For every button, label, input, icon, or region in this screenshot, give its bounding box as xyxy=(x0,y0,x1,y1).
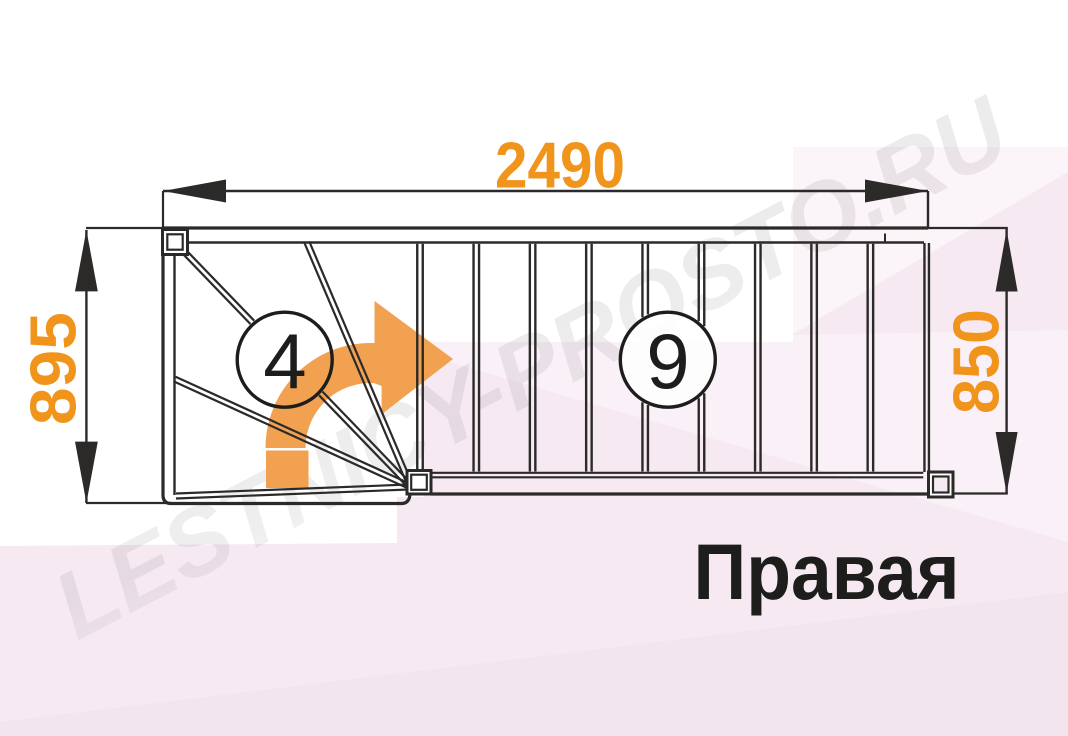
svg-text:895: 895 xyxy=(17,312,90,425)
svg-text:4: 4 xyxy=(263,317,306,405)
svg-text:2490: 2490 xyxy=(495,129,625,202)
svg-text:9: 9 xyxy=(646,317,689,405)
svg-text:850: 850 xyxy=(940,309,1013,414)
svg-text:Правая: Правая xyxy=(694,527,960,616)
